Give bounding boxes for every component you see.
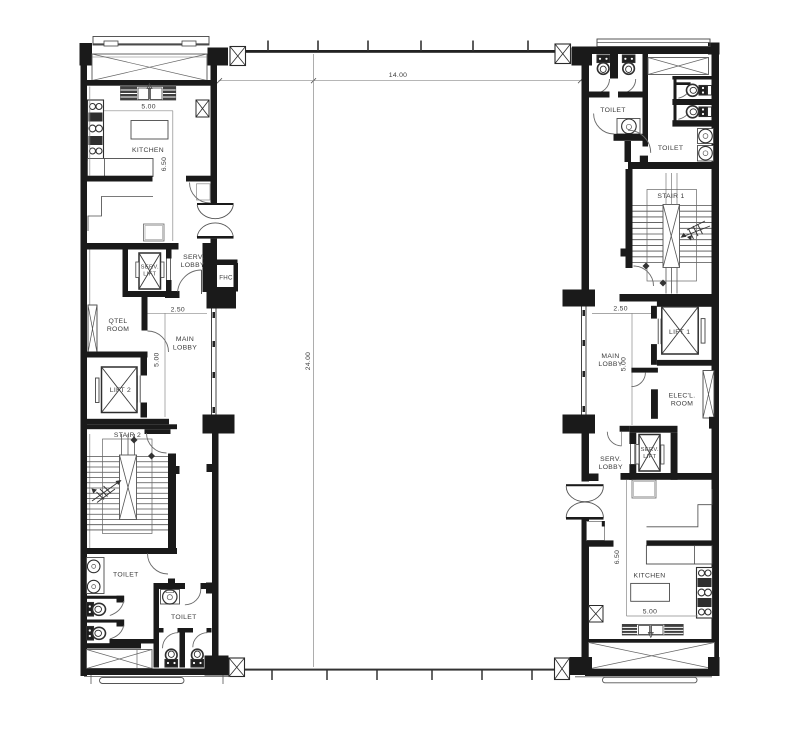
svg-text:SERV.: SERV. (141, 265, 159, 271)
svg-text:5.00: 5.00 (621, 357, 628, 371)
svg-text:MAIN: MAIN (176, 336, 194, 343)
svg-text:QTEL: QTEL (109, 318, 128, 325)
svg-text:LIFT: LIFT (643, 454, 656, 460)
svg-text:MAIN: MAIN (601, 353, 619, 360)
svg-text:6.50: 6.50 (614, 550, 621, 564)
svg-text:2.50: 2.50 (171, 306, 185, 313)
svg-text:5.00: 5.00 (643, 609, 657, 616)
svg-text:TOILET: TOILET (113, 571, 138, 578)
svg-text:KITCHEN: KITCHEN (634, 573, 666, 580)
svg-text:LOBBY: LOBBY (173, 344, 197, 351)
svg-text:6.50: 6.50 (161, 157, 168, 171)
svg-text:TOILET: TOILET (600, 107, 625, 114)
svg-text:STAIR 1: STAIR 1 (657, 193, 684, 200)
svg-text:LIFT 1: LIFT 1 (669, 329, 690, 336)
svg-text:5.00: 5.00 (153, 352, 160, 366)
svg-text:SERV.: SERV. (183, 254, 204, 261)
svg-text:LIFT 2: LIFT 2 (110, 387, 131, 394)
svg-text:FHC: FHC (219, 274, 233, 281)
svg-text:LIFT: LIFT (143, 272, 156, 278)
svg-text:TOILET: TOILET (658, 145, 683, 152)
svg-text:KITCHEN: KITCHEN (132, 147, 164, 154)
svg-text:ROOM: ROOM (107, 326, 129, 333)
svg-text:ROOM: ROOM (671, 401, 693, 408)
svg-text:SERV.: SERV. (600, 456, 621, 463)
svg-text:24.00: 24.00 (305, 352, 312, 371)
svg-text:LOBBY: LOBBY (181, 262, 205, 269)
svg-text:TOILET: TOILET (171, 614, 196, 621)
svg-text:LOBBY: LOBBY (598, 361, 622, 368)
svg-text:5.00: 5.00 (141, 104, 155, 111)
svg-text:2.50: 2.50 (613, 305, 627, 312)
svg-text:LOBBY: LOBBY (599, 464, 623, 471)
svg-text:ELEC'L.: ELEC'L. (669, 393, 696, 400)
svg-text:14.00: 14.00 (389, 72, 408, 79)
svg-text:STAIR 2: STAIR 2 (114, 432, 141, 439)
svg-text:SERV.: SERV. (641, 447, 659, 453)
